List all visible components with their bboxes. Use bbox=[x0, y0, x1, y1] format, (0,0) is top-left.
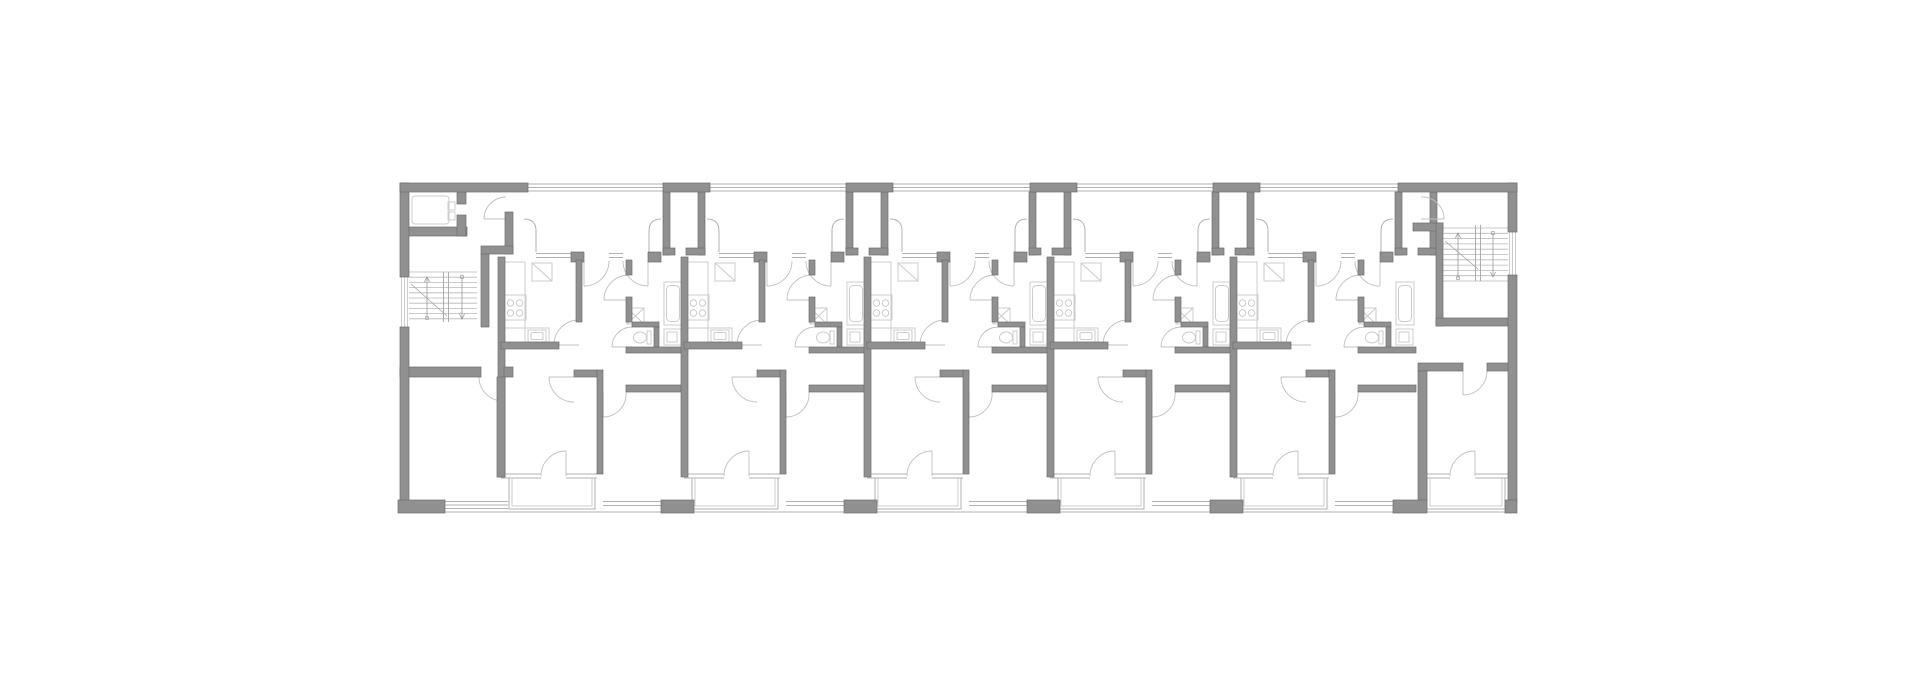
bottom-wall-pier bbox=[844, 500, 877, 513]
bottom-wall-pier bbox=[1210, 500, 1243, 513]
bottom-wall-pier bbox=[398, 500, 445, 513]
top-wall-pier bbox=[1213, 183, 1260, 192]
top-wall-pier bbox=[663, 183, 710, 192]
top-wall-pier bbox=[1030, 183, 1077, 192]
bottom-wall-pier bbox=[1505, 500, 1517, 513]
top-wall-pier bbox=[1398, 183, 1517, 192]
floor-plan-drawing bbox=[0, 0, 1920, 678]
top-wall-pier bbox=[846, 183, 893, 192]
bottom-wall-pier bbox=[1393, 500, 1427, 513]
floor-plan-page bbox=[0, 0, 1920, 678]
bottom-wall-pier bbox=[1027, 500, 1060, 513]
top-wall-pier bbox=[400, 183, 528, 192]
bottom-wall-pier bbox=[661, 500, 694, 513]
